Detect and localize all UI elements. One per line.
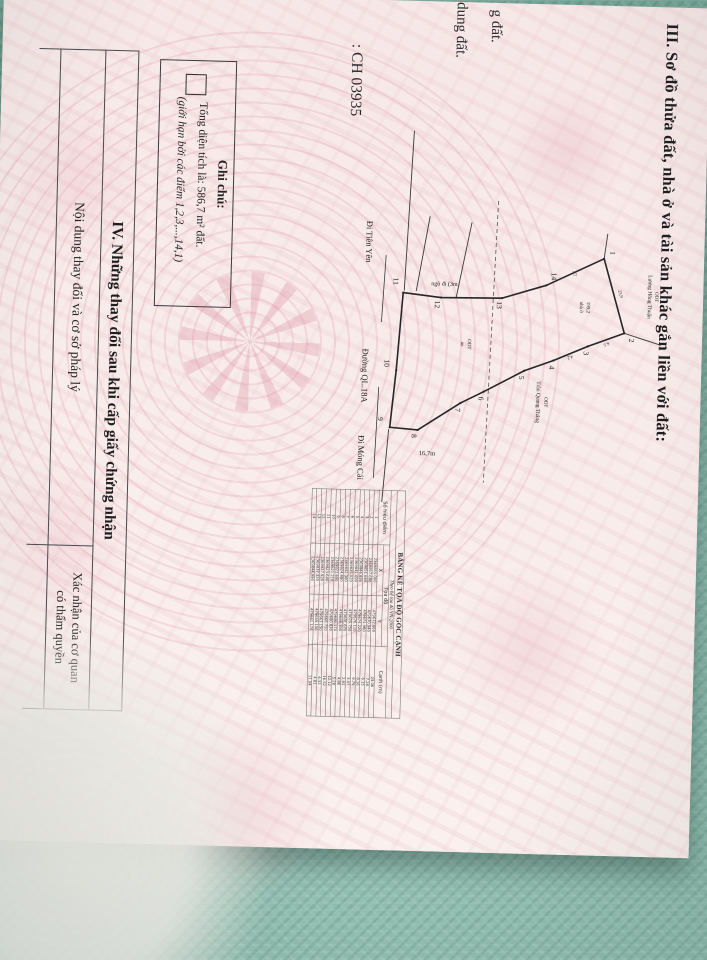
road-edge: [381, 255, 386, 322]
section4-right-header: Xác nhận của cơ quan có thẩm quyền: [44, 544, 92, 710]
road-edge: [373, 387, 378, 478]
photo-viewport: III. Sơ đồ thửa đất, nhà ở và tài sản kh…: [0, 0, 707, 960]
lane-label: ngõ đi (3m: [431, 280, 458, 288]
vertex-number: 4: [547, 365, 556, 369]
cutoff-text-fragment: g đất.: [487, 0, 507, 43]
vertex-number: 1: [608, 251, 617, 255]
vertex-number: 13: [495, 301, 504, 309]
certificate-page: III. Sơ đồ thửa đất, nhà ở và tài sản kh…: [0, 0, 707, 858]
vertex-number: 11: [391, 278, 400, 286]
col-header-edge: Cạnh (m): [373, 646, 387, 718]
col-header-point: Số hiệu điểm: [378, 490, 391, 545]
cutoff-text-fragment: dung đất.: [451, 0, 471, 58]
edge-measure: 7,5: [570, 270, 578, 278]
edge-measure: 23,9: [616, 289, 624, 299]
vertex-number: 12: [433, 301, 442, 309]
vertex-number: 6: [476, 397, 485, 401]
inner-annotation: 199,2: [585, 302, 590, 314]
pattern-blob: [147, 714, 332, 909]
coordinate-table: BẢNG KÊ TỌA ĐỘ GÓC CẠNH Theo hệ tọa độ V…: [305, 488, 406, 718]
note-title: Ghi chú:: [211, 62, 233, 307]
vertex-number: 2: [627, 339, 636, 343]
road-direction-right: Đi Móng Cái: [355, 435, 366, 481]
vertex-number: 7: [453, 408, 462, 412]
certificate-serial-fragment: : CH 03935: [346, 0, 369, 116]
neighbor2-name: Trần Quang Thắng: [534, 381, 542, 423]
vertex-number: 14: [550, 273, 559, 281]
section4-right-header-line2: có thẩm quyền: [51, 590, 69, 664]
inner-annotation: ODT: [466, 339, 471, 349]
checkbox-icon: [185, 74, 207, 96]
parcel-boundary: [390, 253, 627, 435]
vertex-number: 10: [382, 359, 391, 367]
edge-measure-labels: 23,97,56,54,2: [565, 270, 625, 362]
zone-dashed-line: [483, 201, 498, 483]
total-area-text: Tổng diện tích là: 586,7 m² đất.: [192, 102, 209, 302]
road-direction-left: Đi Tiên Yên: [364, 221, 375, 264]
boundary-points-text: (giới hạn bởi các điểm 1,2,3,...,14,1): [171, 97, 188, 303]
road-edge: [404, 131, 414, 291]
note-box: Ghi chú: Tổng diện tích là: 586,7 m² đất…: [154, 59, 237, 308]
vertex-labels: 1234567891011121314: [375, 245, 638, 444]
boundary-extension: [604, 234, 608, 259]
neighbor1-landcode: ODT: [653, 292, 658, 302]
neighbor2-landcode: ODT: [542, 397, 547, 407]
vertex-number: 5: [517, 376, 526, 380]
inner-annotation: ao: [459, 342, 464, 347]
inner-annotation: nhà ở: [578, 302, 583, 314]
vertex-number: 9: [376, 417, 385, 421]
vertex-number: 3: [582, 351, 591, 355]
road-name: Đường QL.18A: [359, 348, 370, 403]
lane-line: [416, 216, 430, 291]
section4-right-header-line1: Xác nhận của cơ quan: [67, 572, 86, 683]
vertex-number: 8: [409, 434, 418, 438]
lane-line: [456, 222, 472, 298]
edge-length-label: 16,7m: [419, 450, 436, 457]
